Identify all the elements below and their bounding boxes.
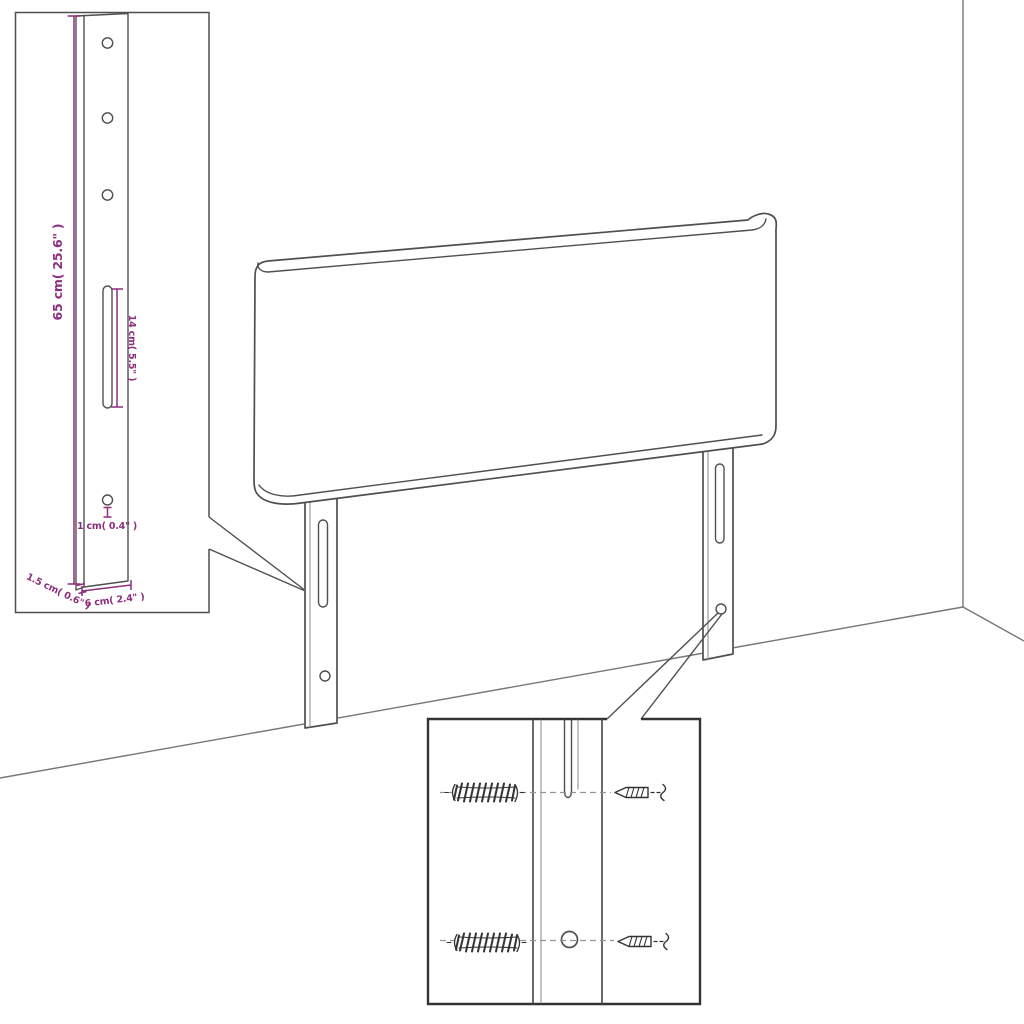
right-leg [702, 440, 734, 661]
floor-line-left [0, 607, 963, 778]
leg-closeup [533, 720, 602, 1003]
wall-plug-icon-top [445, 784, 524, 802]
left-leg-hole [320, 671, 330, 681]
headboard-outline [254, 213, 776, 504]
hardware-inset [428, 719, 700, 1004]
bracket-inset: 65 cm( 25.6" ) 14 cm( 5.5" ) 1 cm( 0.4" … [16, 13, 210, 613]
callout-line-bracket-upper [209, 517, 304, 590]
right-leg-hole [716, 604, 726, 614]
headboard-dimension-diagram: 65 cm( 25.6" ) 14 cm( 5.5" ) 1 cm( 0.4" … [0, 0, 1024, 1024]
bracket-drawing [76, 14, 128, 591]
dim-hole-label: 1 cm( 0.4" ) [77, 521, 137, 532]
callout-bracket [209, 517, 304, 591]
callout-line-bracket-lower [209, 549, 304, 591]
diagram-canvas: 65 cm( 25.6" ) 14 cm( 5.5" ) 1 cm( 0.4" … [0, 0, 1024, 1024]
leg-closeup-hole [562, 932, 578, 948]
callout-line-hardware-right [641, 614, 722, 719]
headboard-panel [254, 213, 776, 504]
screw-icon-top [615, 785, 666, 801]
bracket-hole-middle [102, 113, 112, 123]
bracket-hole-top [102, 38, 112, 48]
floor-line-right [963, 607, 1024, 641]
bracket-small-hole [103, 495, 113, 505]
callout-line-hardware-left [607, 613, 718, 719]
screw-icon-bottom [618, 934, 669, 950]
dim-width-label: 6 cm( 2.4" ) [84, 591, 145, 609]
left-leg [304, 490, 338, 729]
bracket-hole-lower [102, 190, 112, 200]
dim-slot-label: 14 cm( 5.5" ) [126, 315, 137, 382]
wall-plug-icon-bottom [447, 934, 526, 952]
leg-closeup-slot [565, 720, 572, 798]
dim-height-label: 65 cm( 25.6" ) [50, 224, 65, 321]
